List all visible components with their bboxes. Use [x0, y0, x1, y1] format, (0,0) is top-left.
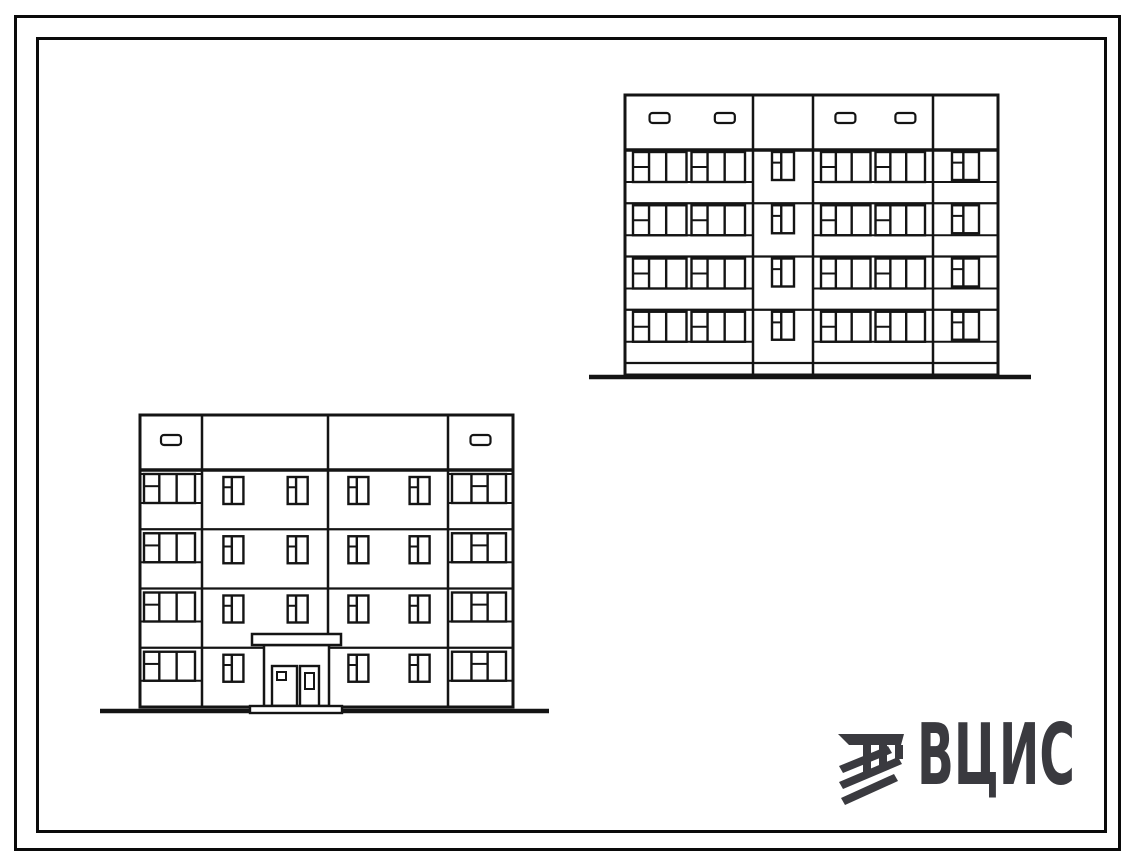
- drawing-sheet: ВЦИС: [0, 0, 1134, 863]
- entrance-step: [250, 706, 342, 713]
- elevation-rear: [589, 95, 1031, 377]
- vcis-logo: ВЦИС: [832, 721, 1093, 806]
- vcis-logo-text-box: ВЦИС: [917, 721, 1093, 806]
- entrance-canopy: [252, 634, 341, 645]
- vcis-logo-text: ВЦИС: [917, 721, 1075, 805]
- entrance: [250, 634, 342, 713]
- vcis-emblem-icon: [832, 726, 910, 806]
- elevation-front-entrance: [100, 415, 549, 713]
- emblem-top-bar: [838, 734, 904, 745]
- emblem-column: [895, 745, 903, 759]
